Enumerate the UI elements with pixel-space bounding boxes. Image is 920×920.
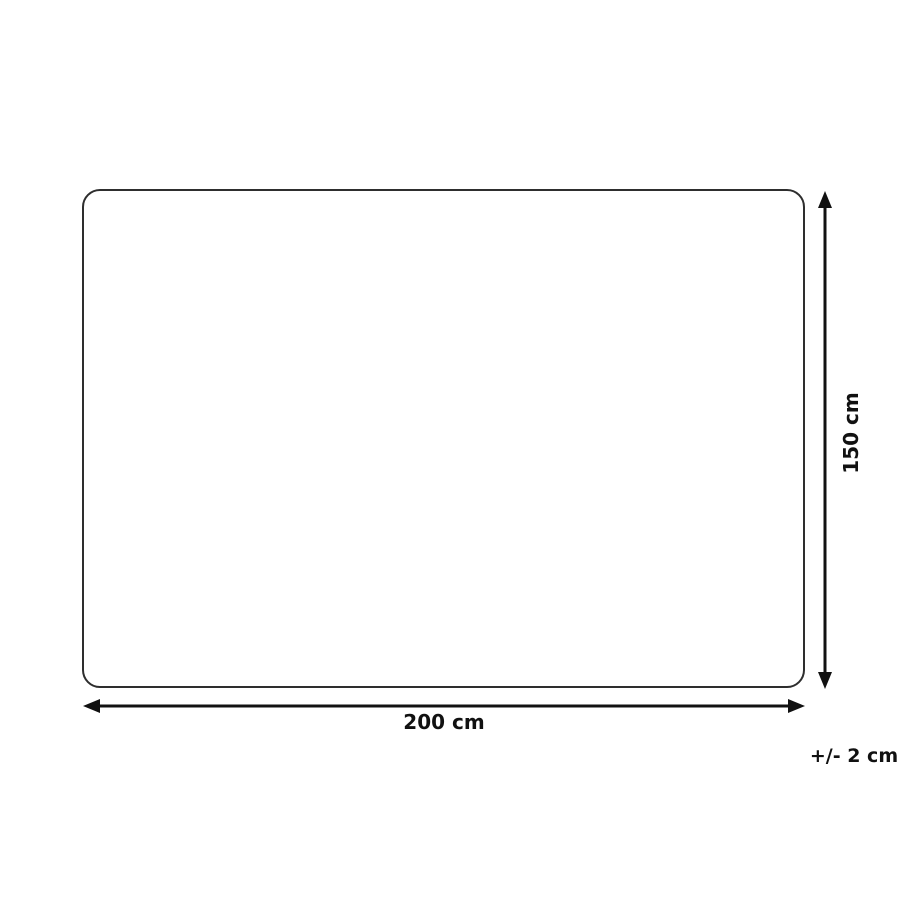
product-outline-rectangle — [82, 189, 805, 688]
dimension-diagram: 200 cm 150 cm +/- 2 cm — [0, 0, 920, 920]
arrowhead-down-icon — [818, 672, 832, 689]
arrowhead-up-icon — [818, 191, 832, 208]
arrowhead-left-icon — [83, 699, 100, 713]
arrowhead-right-icon — [788, 699, 805, 713]
tolerance-label: +/- 2 cm — [810, 745, 898, 767]
width-dimension-label: 200 cm — [403, 710, 484, 734]
height-dimension-arrow — [818, 191, 832, 689]
height-dimension-label: 150 cm — [839, 392, 863, 473]
